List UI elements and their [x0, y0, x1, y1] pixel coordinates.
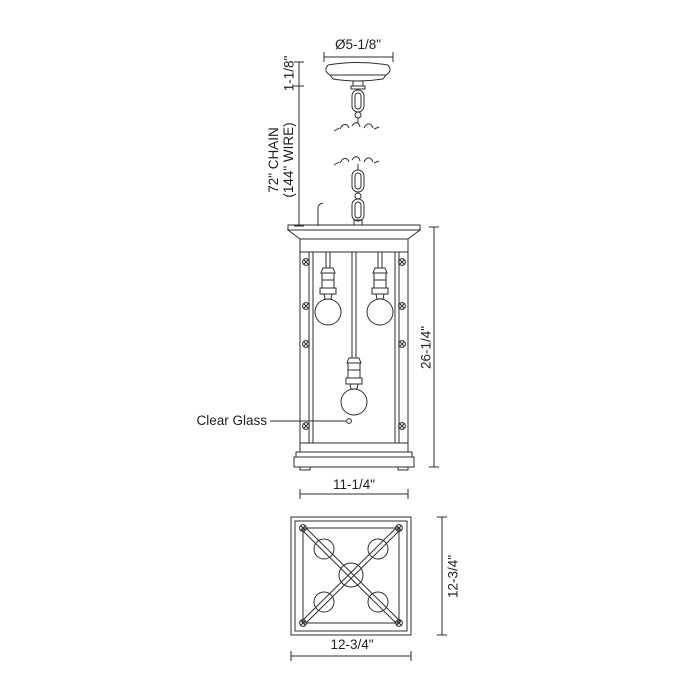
bottom-view-bulbs: [314, 539, 388, 612]
spec-drawing-sheet: Ø5-1/8" 1-1/8" 72" CHAIN (144" WIRE) 26-…: [0, 0, 700, 700]
chain-break-upper: [334, 123, 379, 131]
fixture-frame: [300, 252, 408, 443]
hang-wire: [318, 203, 323, 226]
clear-glass-label: Clear Glass: [157, 413, 267, 428]
canopy-diameter-dimension: [324, 52, 393, 62]
bottom-view-width-label: 12-3/4": [302, 637, 402, 652]
fixture-width-label: 11-1/4": [304, 477, 404, 492]
fixture-line-art: [0, 0, 700, 700]
canopy-diameter-label: Ø5-1/8": [308, 37, 408, 52]
chain: [318, 90, 379, 226]
clear-glass-indicator: [270, 419, 351, 424]
bulb-right: [367, 252, 393, 325]
chain-length-line1: 72" CHAIN: [266, 105, 281, 215]
ceiling-canopy: [326, 63, 390, 90]
canopy-height-label: 1-1/8": [282, 52, 297, 96]
chain-length-label: 72" CHAIN (144" WIRE): [266, 105, 296, 215]
bottom-width-dimension: [291, 651, 411, 661]
fixture-crown: [288, 225, 420, 252]
chain-break-lower: [334, 157, 379, 165]
bulb-left: [315, 252, 341, 325]
fixture-height-label: 26-1/4": [419, 308, 434, 388]
fixture-bottom-view: [291, 517, 411, 635]
bulb-center: [341, 252, 367, 415]
chain-length-line2: (144" WIRE): [281, 105, 296, 215]
fixture-base: [294, 443, 414, 470]
fixture-front-view: [270, 225, 420, 470]
bottom-view-height-label: 12-3/4": [446, 537, 461, 617]
